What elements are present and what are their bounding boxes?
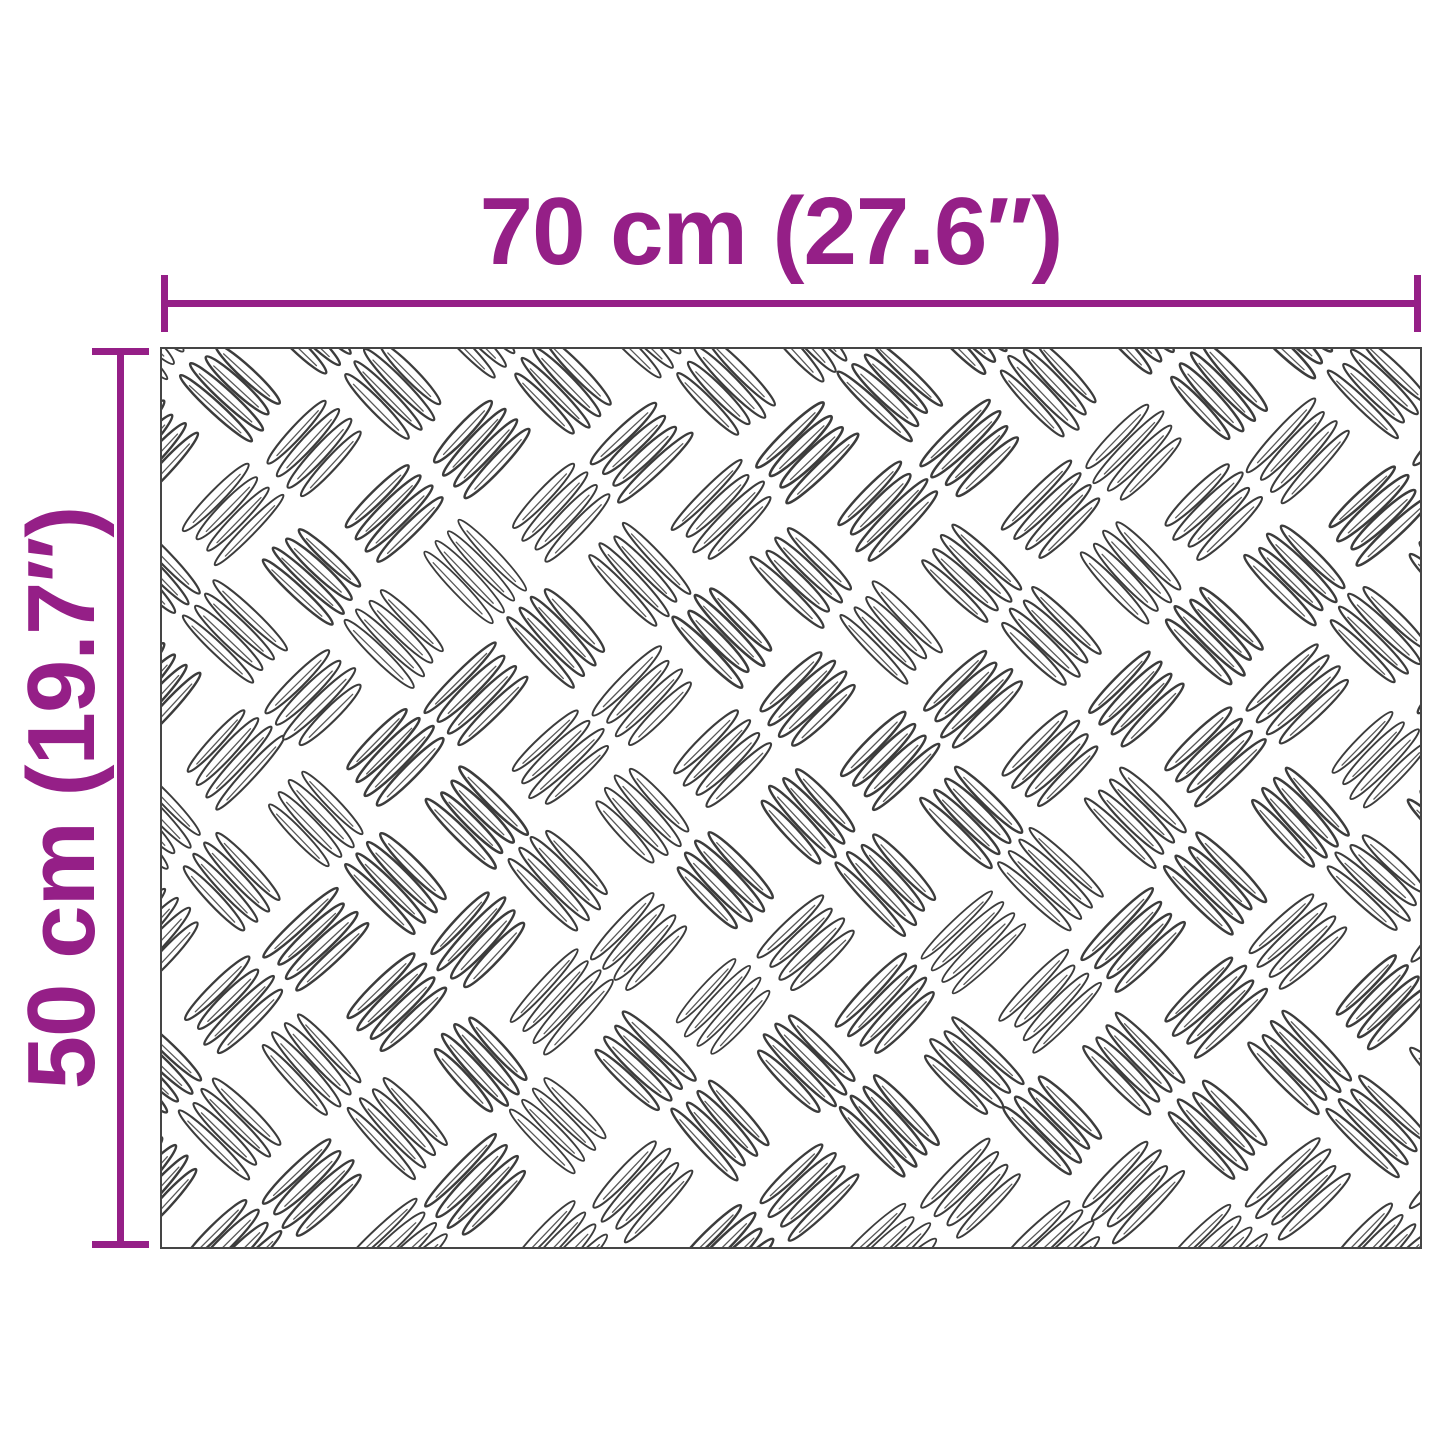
dimension-diagram: 70 cm (27.6″) 50 cm (19.7″) [0,0,1445,1445]
dimension-end-cap [92,348,149,355]
dimension-end-cap [161,275,168,332]
width-dimension-label: 70 cm (27.6″) [141,182,1401,282]
height-dimension-label: 50 cm (19.7″) [12,448,112,1148]
width-dimension-line [161,300,1421,307]
checker-plate-pattern-svg [162,349,1420,1247]
height-dimension-line [117,348,124,1248]
checker-plate [160,347,1422,1249]
dimension-end-cap [92,1241,149,1248]
dimension-end-cap [1414,275,1421,332]
